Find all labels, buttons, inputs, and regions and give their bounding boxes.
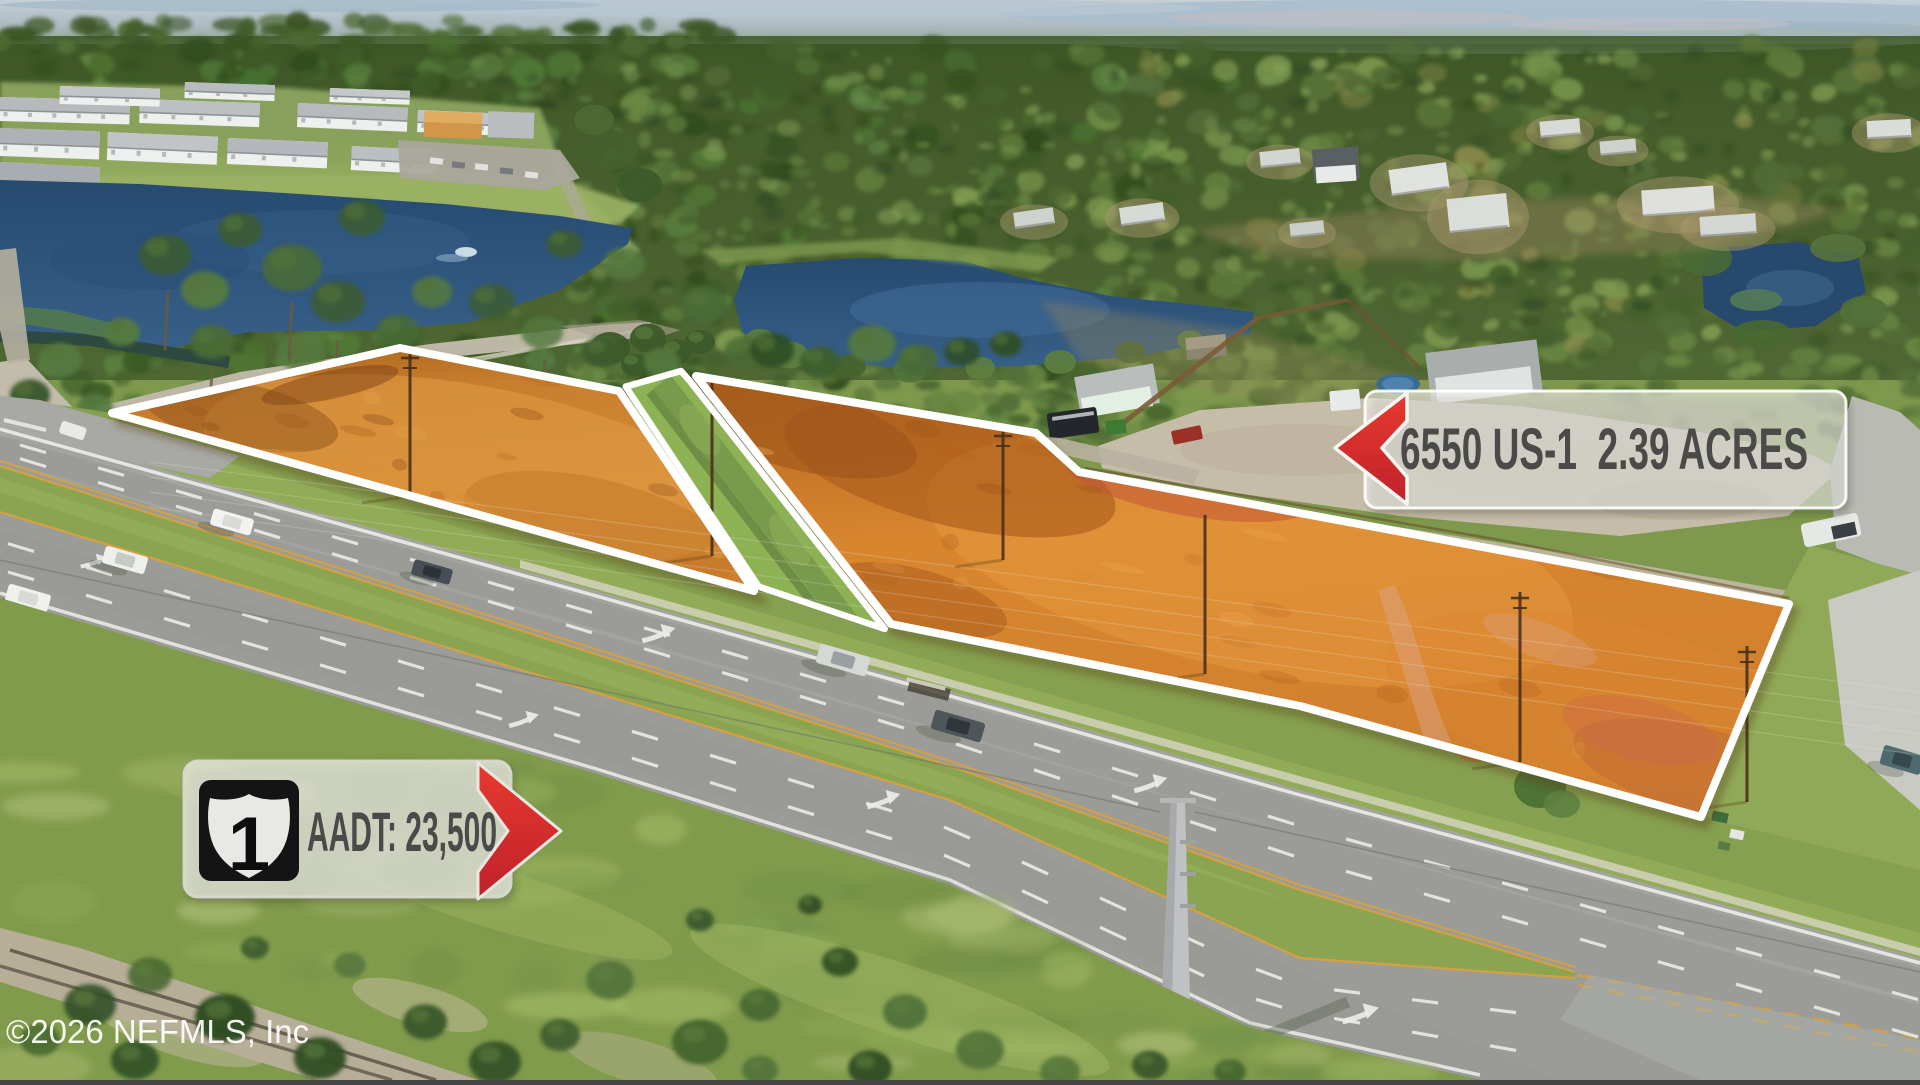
svg-text:1: 1 <box>228 802 270 887</box>
svg-text:©2026 NEFMLS, Inc: ©2026 NEFMLS, Inc <box>6 1013 309 1050</box>
svg-text:AADT: 23,500: AADT: 23,500 <box>307 800 497 863</box>
svg-text:6550 US-1 2.39 ACRES: 6550 US-1 2.39 ACRES <box>1400 417 1808 482</box>
